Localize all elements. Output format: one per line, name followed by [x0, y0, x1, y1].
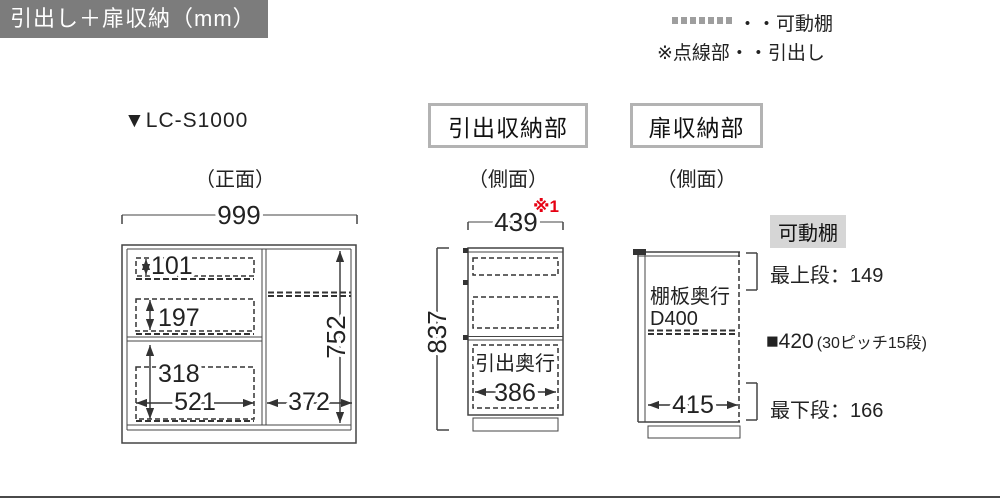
model-name: ▼LC-S1000: [124, 109, 248, 133]
bottom-shelf-position: 最下段：166: [770, 394, 883, 423]
movable-shelf-line-side: [648, 331, 738, 335]
dim-372: 372: [288, 388, 330, 416]
inner-depth-dim: 415: [648, 391, 738, 419]
drawer-section-title: 引出収納部: [428, 103, 588, 148]
dim-total-width: 999: [122, 200, 357, 230]
diagram-page: 引出し＋扉収納（mm） ・・可動棚 ※点線部・・引出し ▼LC-S1000 （正…: [0, 0, 1000, 500]
door-side-diagram: 棚板奥行 D400 415: [620, 190, 780, 450]
legend-movable-shelf: ・・可動棚: [738, 9, 833, 36]
dim-439: 439: [494, 207, 537, 237]
front-view-label: （正面）: [160, 163, 310, 192]
front-view-diagram: 999 101: [100, 193, 380, 460]
door-section-title: 扉収納部: [630, 103, 763, 148]
legend-drawer-note: ※点線部・・引出し: [657, 38, 825, 65]
dim-318: 318: [158, 360, 200, 388]
height-bracket: 837: [422, 248, 452, 430]
bottom-divider: [0, 496, 1000, 498]
drawer-depth-label: 引出奥行: [475, 352, 555, 375]
drawer-depth-dim: 引出奥行 386: [475, 352, 556, 407]
door-side-view-label: （側面）: [630, 163, 763, 192]
pitch-value: ■420: [766, 330, 814, 354]
dim-999: 999: [217, 200, 260, 230]
shelf-depth-label-1: 棚板奥行: [650, 285, 730, 308]
dim-521: 521: [174, 388, 216, 416]
top-shelf-position: 最上段：149: [770, 259, 883, 288]
dim-386: 386: [494, 379, 536, 407]
shelf-depth-text: 棚板奥行 D400: [650, 285, 730, 330]
dim-415: 415: [672, 391, 714, 419]
pitch-note: (30ピッチ15段): [817, 329, 927, 353]
dim-101: 101: [151, 252, 193, 280]
shelf-depth-label-2: D400: [650, 308, 698, 330]
dim-837: 837: [422, 310, 452, 353]
movable-shelf-dash-icon: [672, 17, 734, 24]
drawer-side-diagram: ※1 439 837 引出奥行: [420, 190, 580, 440]
dim-752: 752: [321, 315, 351, 358]
movable-shelf-tag: 可動棚: [770, 215, 846, 248]
page-title: 引出し＋扉収納（mm）: [0, 0, 268, 38]
shelf-position-brackets: [746, 253, 757, 420]
movable-shelf-line: [268, 293, 351, 297]
dim-197: 197: [158, 304, 200, 332]
drawer-side-view-label: （側面）: [428, 163, 588, 192]
pitch-annotation: ■420 (30ピッチ15段): [766, 329, 927, 354]
